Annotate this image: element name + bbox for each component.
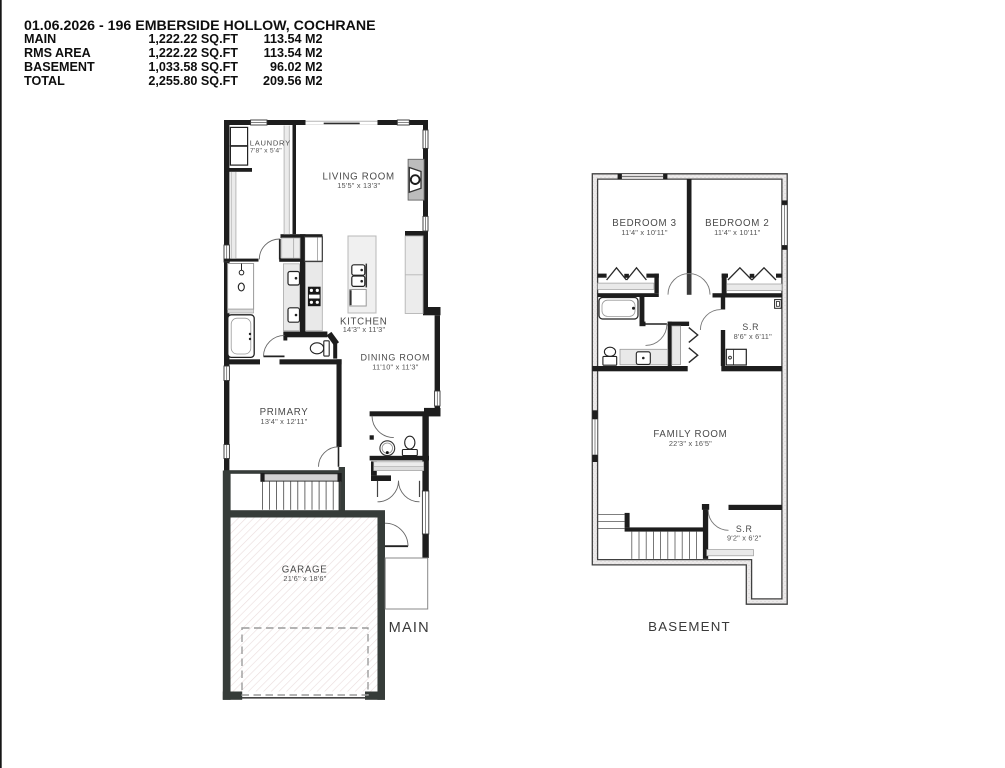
svg-text:96.02 M2: 96.02 M2 xyxy=(270,60,323,74)
svg-text:MAIN: MAIN xyxy=(389,620,430,636)
svg-text:DINING ROOM: DINING ROOM xyxy=(360,352,430,362)
svg-text:1,222.22 SQ.FT: 1,222.22 SQ.FT xyxy=(148,46,238,60)
svg-text:2,255.80 SQ.FT: 2,255.80 SQ.FT xyxy=(148,74,238,88)
svg-text:9'2" x 6'2": 9'2" x 6'2" xyxy=(727,533,762,542)
svg-text:1,033.58 SQ.FT: 1,033.58 SQ.FT xyxy=(148,60,238,74)
svg-text:RMS AREA: RMS AREA xyxy=(24,46,91,60)
svg-text:15'5" x 13'3": 15'5" x 13'3" xyxy=(337,181,380,190)
svg-text:13'4" x 12'11": 13'4" x 12'11" xyxy=(261,417,308,426)
svg-text:14'3" x 11'3": 14'3" x 11'3" xyxy=(343,325,386,334)
svg-text:TOTAL: TOTAL xyxy=(24,74,65,88)
svg-text:7'8" x 5'4": 7'8" x 5'4" xyxy=(250,147,282,154)
svg-text:BASEMENT: BASEMENT xyxy=(24,60,95,74)
svg-text:BASEMENT: BASEMENT xyxy=(648,619,731,634)
svg-text:22'3" x 16'5": 22'3" x 16'5" xyxy=(669,439,712,448)
svg-text:113.54 M2: 113.54 M2 xyxy=(264,46,323,60)
svg-text:LAUNDRY: LAUNDRY xyxy=(250,138,291,147)
svg-text:113.54 M2: 113.54 M2 xyxy=(264,32,323,46)
svg-text:MAIN: MAIN xyxy=(24,32,56,46)
svg-text:11'10" x 11'3": 11'10" x 11'3" xyxy=(372,362,419,371)
svg-text:11'4" x 10'11": 11'4" x 10'11" xyxy=(621,228,668,237)
svg-text:209.56 M2: 209.56 M2 xyxy=(263,74,323,88)
svg-text:21'6" x 18'6": 21'6" x 18'6" xyxy=(283,574,326,583)
svg-text:1,222.22 SQ.FT: 1,222.22 SQ.FT xyxy=(148,32,238,46)
svg-text:11'4" x 10'11": 11'4" x 10'11" xyxy=(714,228,761,237)
svg-text:8'6" x 6'11": 8'6" x 6'11" xyxy=(734,332,772,341)
svg-text:S.R: S.R xyxy=(742,322,759,332)
